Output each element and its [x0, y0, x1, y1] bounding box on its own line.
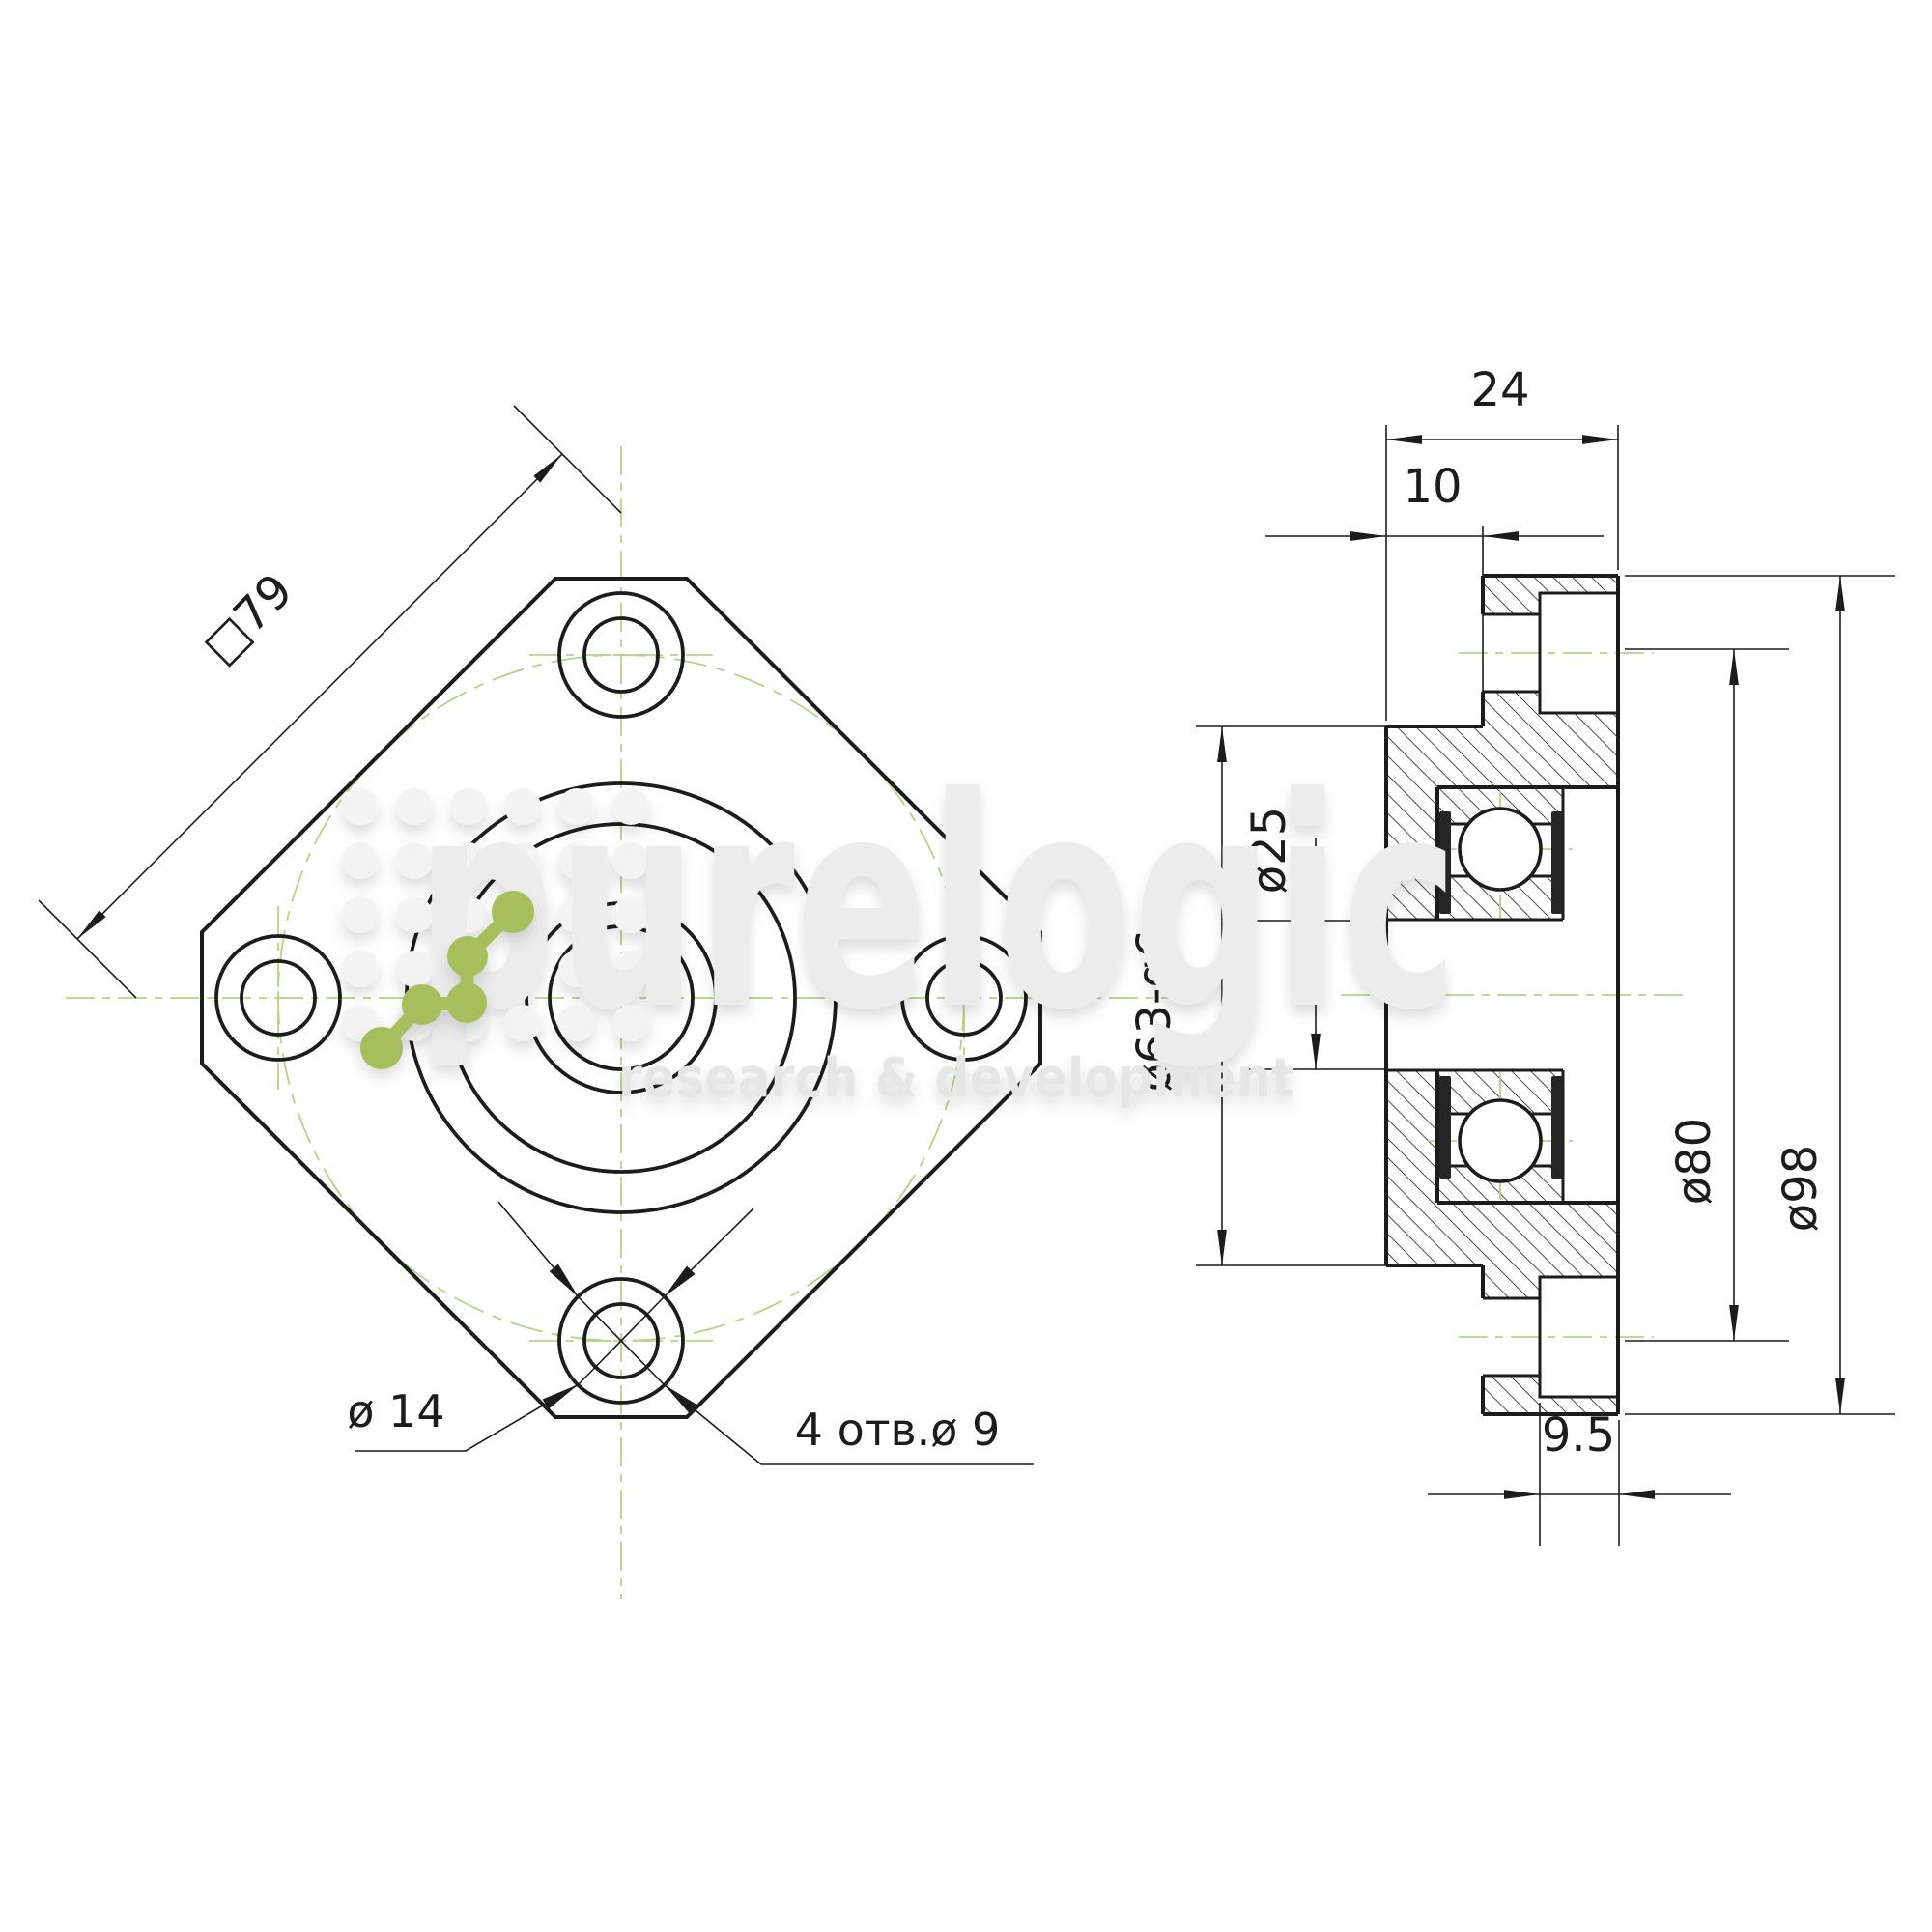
dim-9-5: 9.5 [1428, 1403, 1731, 1546]
watermark-tagline: research & development [618, 1047, 1294, 1110]
technical-drawing: □79 ø 14 4 отв.ø 9 [0, 0, 1932, 1932]
dim-square-79-label: □79 [192, 563, 303, 674]
ball-upper [1460, 809, 1541, 890]
hole-callouts: ø 14 4 отв.ø 9 [347, 1202, 1034, 1464]
dim-bolt-circle-80: ø80 [1625, 649, 1789, 1341]
dim-24-label: 24 [1470, 363, 1529, 417]
drawing-page: □79 ø 14 4 отв.ø 9 [0, 0, 1932, 1932]
watermark-brand: purelogic [415, 736, 1459, 1073]
dim-holes-note-label: 4 отв.ø 9 [795, 1404, 1001, 1456]
dim-10-label: 10 [1403, 460, 1462, 514]
dim-bolt-circle-80-label: ø80 [1667, 1118, 1721, 1205]
dim-9-5-label: 9.5 [1542, 1408, 1615, 1463]
dim-outer-98-label: ø98 [1774, 1145, 1828, 1232]
dim-24: 24 [1386, 363, 1618, 721]
ball-lower [1460, 1100, 1541, 1181]
dim-counterbore-label: ø 14 [347, 1385, 444, 1437]
